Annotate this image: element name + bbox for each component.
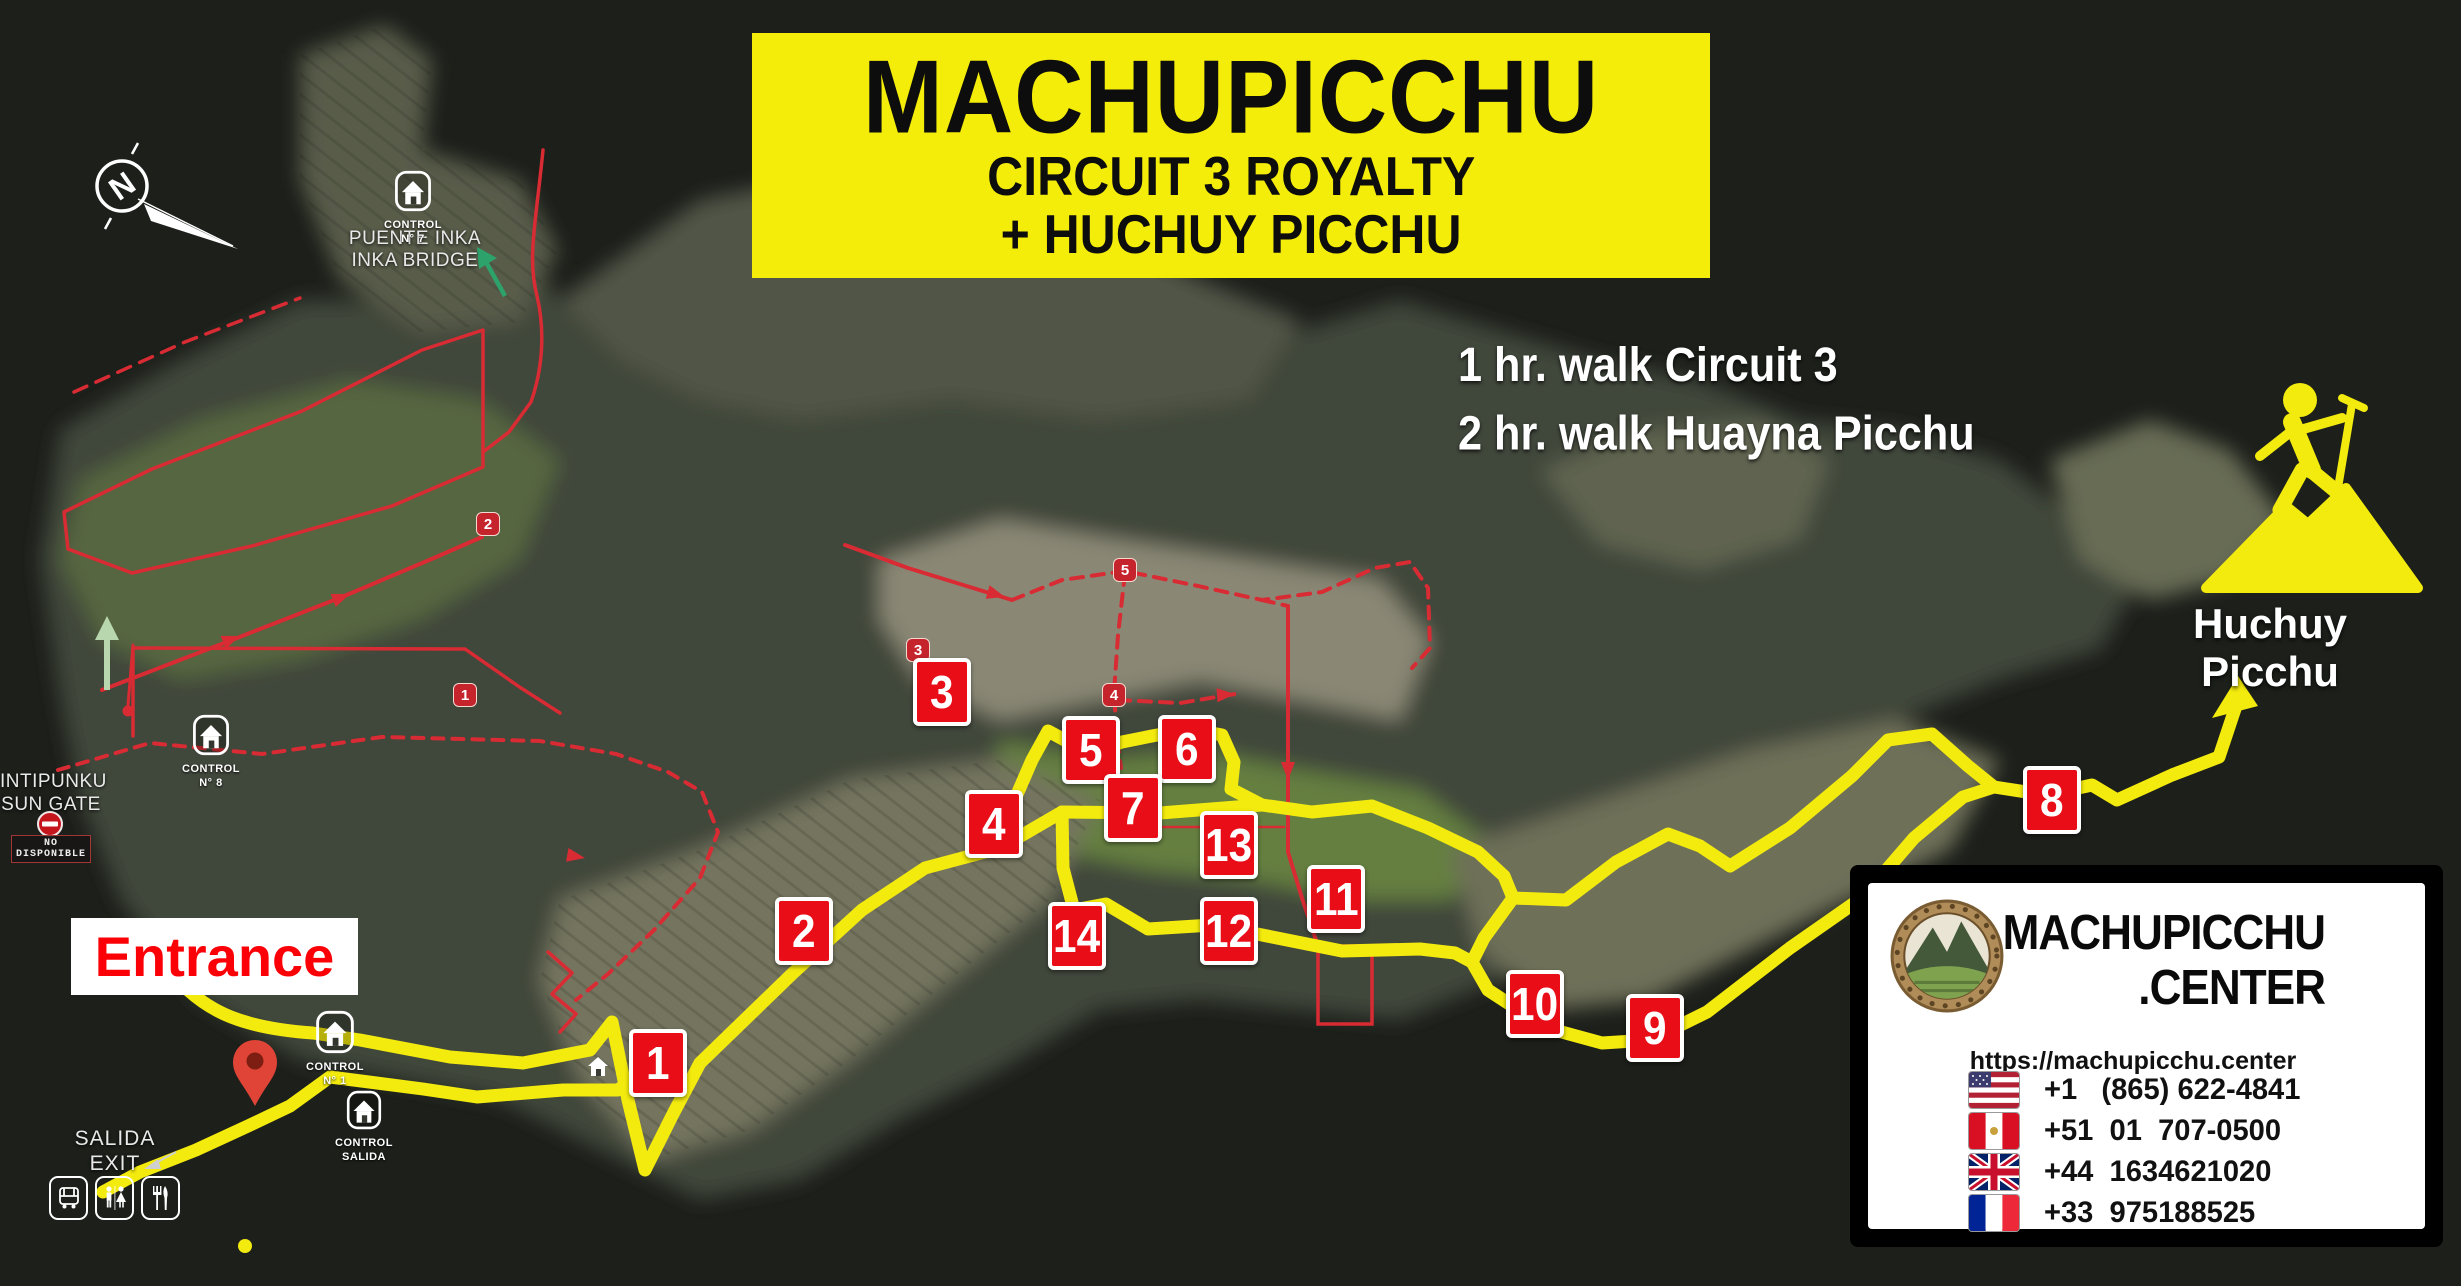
route-marker-11[interactable]: 11 [1307, 865, 1365, 933]
route-marker-number: 12 [1205, 904, 1252, 958]
route-marker-number: 8 [2040, 773, 2064, 827]
route-marker-6[interactable]: 6 [1158, 715, 1216, 783]
route-marker-1[interactable]: 1 [629, 1029, 687, 1097]
entrance-text: Entrance [95, 924, 335, 989]
brand-line1: MACHUPICCHU [1933, 905, 2325, 960]
mini-marker-5: 5 [1113, 558, 1137, 582]
route-marker-8[interactable]: 8 [2023, 766, 2081, 834]
salida-line1: SALIDA [40, 1126, 190, 1151]
route-marker-13[interactable]: 13 [1200, 811, 1258, 879]
control-caption: SALIDA [342, 1151, 386, 1163]
fr-flag-icon [1968, 1194, 2020, 1232]
phone-number: +1 (865) 622-4841 [2044, 1073, 2300, 1107]
route-marker-number: 10 [1511, 977, 1558, 1031]
mini-marker-number: 5 [1121, 562, 1129, 579]
route-marker-number: 2 [792, 904, 816, 958]
contact-card-inner: MACHUPICCHU .CENTER https://machupicchu.… [1868, 883, 2425, 1229]
route-marker-number: 13 [1205, 818, 1252, 872]
map-subtitle-huchuy: + HUCHUY PICCHU [1001, 204, 1462, 265]
route-marker-7[interactable]: 7 [1104, 774, 1162, 842]
map-title: MACHUPICCHU [863, 43, 1599, 151]
mini-marker-4: 4 [1102, 683, 1126, 707]
salida-exit-label: SALIDA EXIT [40, 1126, 190, 1176]
walk-times: 1 hr. walk Circuit 3 2 hr. walk Huayna P… [1458, 330, 1975, 467]
phone-number: +51 01 707-0500 [2044, 1114, 2281, 1148]
restaurant-icon [141, 1176, 180, 1220]
control-salida-checkpoint: CONTROLSALIDA [319, 1090, 409, 1163]
hiker-icon [2196, 378, 2426, 601]
bus-icon [49, 1176, 88, 1220]
control-house-icon [394, 170, 432, 217]
route-marker-number: 6 [1175, 722, 1199, 776]
machu-picchu-map: N MACHUPICCHU CIRCUIT 3 ROYALTY + HUCHUY… [0, 0, 2461, 1286]
mini-marker-number: 1 [461, 687, 469, 704]
phone-row-fr[interactable]: +33 975188525 [1968, 1192, 2308, 1233]
pe-flag-icon [1968, 1112, 2020, 1150]
yellow-dot [238, 1239, 252, 1253]
mini-marker-number: 3 [914, 642, 922, 659]
compass-n-label: N [102, 165, 142, 208]
control-1-checkpoint: CONTROLN° 1 [290, 1010, 380, 1087]
route-marker-3[interactable]: 3 [913, 658, 971, 726]
title-banner: MACHUPICCHU CIRCUIT 3 ROYALTY + HUCHUY P… [752, 33, 1710, 278]
mini-marker-number: 2 [484, 516, 492, 533]
intipunku-line1: INTIPUNKU [0, 770, 102, 793]
route-marker-number: 5 [1079, 723, 1103, 777]
route-marker-4[interactable]: 4 [965, 790, 1023, 858]
restroom-icon [95, 1176, 134, 1220]
control-caption: CONTROL [384, 219, 442, 231]
control-8-checkpoint: CONTROLN° 8 [166, 714, 256, 789]
control-7-checkpoint: CONTROLN° 7 [368, 170, 458, 245]
control-caption: CONTROL [306, 1061, 364, 1073]
walk-time-circuit3: 1 hr. walk Circuit 3 [1458, 330, 1975, 399]
huchuy-picchu-label: Huchuy Picchu [2120, 600, 2420, 696]
phone-number: +33 975188525 [2044, 1196, 2255, 1230]
route-marker-number: 4 [982, 797, 1006, 851]
uk-flag-icon [1968, 1153, 2020, 1191]
brand-line2: .CENTER [1933, 960, 2325, 1015]
control-house-icon [315, 1010, 355, 1059]
route-marker-number: 14 [1053, 909, 1100, 963]
route-marker-number: 3 [930, 665, 954, 719]
puente-line2: INKA BRIDGE [330, 250, 500, 272]
phone-row-us[interactable]: +1 (865) 622-4841 [1968, 1069, 2308, 1110]
route-marker-number: 7 [1121, 781, 1145, 835]
control-caption: CONTROL [335, 1137, 393, 1149]
route-marker-number: 9 [1643, 1001, 1667, 1055]
entrance-label: Entrance [71, 918, 358, 995]
control-house-icon [192, 714, 230, 761]
route-marker-9[interactable]: 9 [1626, 994, 1684, 1062]
salida-line2: EXIT [40, 1151, 190, 1176]
phone-row-uk[interactable]: +44 1634621020 [1968, 1151, 2308, 1192]
phone-row-pe[interactable]: +51 01 707-0500 [1968, 1110, 2308, 1151]
us-flag-icon [1968, 1071, 2020, 1109]
mini-marker-1: 1 [453, 683, 477, 707]
mini-marker-number: 4 [1110, 687, 1118, 704]
mini-marker-2: 2 [476, 512, 500, 536]
route-marker-12[interactable]: 12 [1200, 897, 1258, 965]
entrance-pin-icon [233, 1040, 277, 1106]
control-house-icon [346, 1090, 382, 1135]
brand-name: MACHUPICCHU .CENTER [1933, 905, 2325, 1015]
route-marker-14[interactable]: 14 [1048, 902, 1106, 970]
phone-number: +44 1634621020 [2044, 1155, 2271, 1189]
control-caption: N° 8 [199, 777, 223, 789]
compass-icon: N [97, 143, 238, 249]
route-marker-number: 1 [646, 1036, 670, 1090]
control-caption: CONTROL [182, 763, 240, 775]
not-available-badge: NO DISPONIBLE [11, 835, 91, 863]
route-marker-number: 11 [1314, 872, 1359, 926]
map-subtitle-circuit: CIRCUIT 3 ROYALTY [987, 146, 1475, 207]
contact-card: MACHUPICCHU .CENTER https://machupicchu.… [1850, 865, 2443, 1247]
route-marker-10[interactable]: 10 [1506, 970, 1564, 1038]
walk-time-huayna: 2 hr. walk Huayna Picchu [1458, 399, 1975, 468]
control-caption: N° 1 [323, 1075, 347, 1087]
exit-amenities [49, 1176, 180, 1220]
control-caption: N° 7 [401, 233, 425, 245]
phone-list: +1 (865) 622-4841+51 01 707-0500+44 1634… [1968, 1069, 2308, 1233]
route-marker-2[interactable]: 2 [775, 897, 833, 965]
